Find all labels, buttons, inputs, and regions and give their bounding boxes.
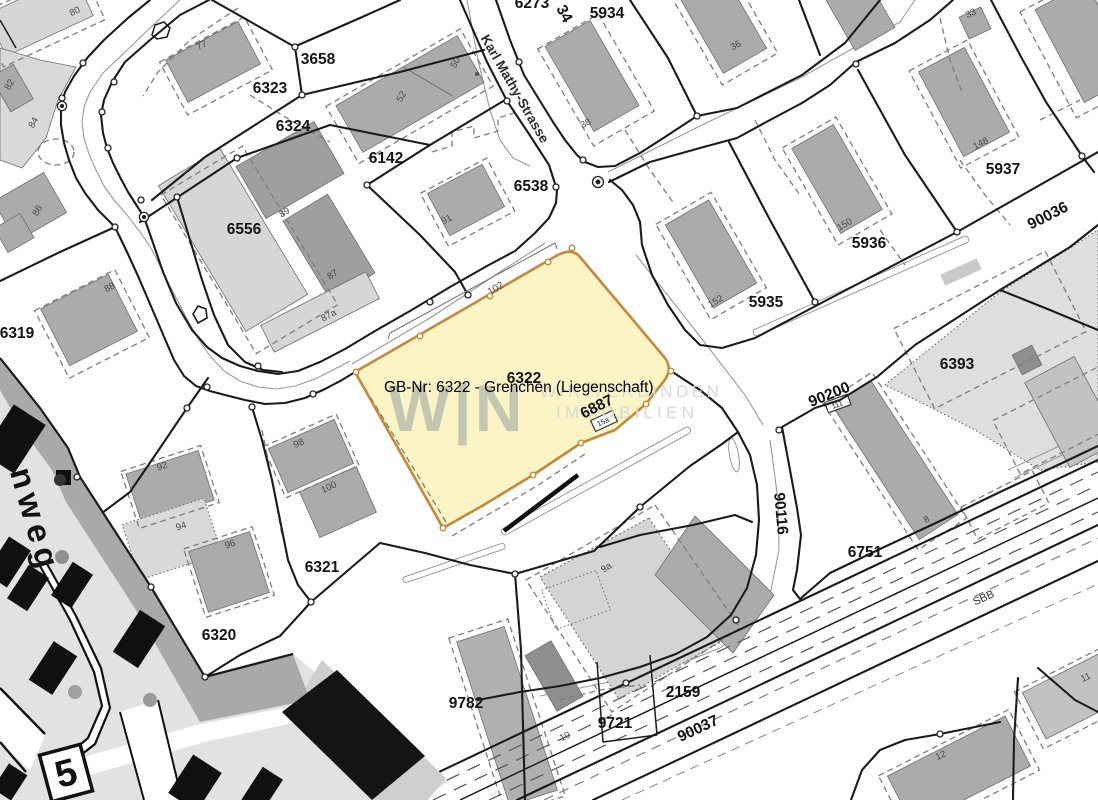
svg-text:6319: 6319 [0, 325, 35, 342]
svg-text:IMMOBILIEN: IMMOBILIEN [556, 403, 698, 422]
svg-text:6556: 6556 [227, 221, 262, 238]
svg-text:6323: 6323 [253, 80, 288, 97]
svg-text:6320: 6320 [202, 627, 236, 644]
svg-text:5934: 5934 [590, 5, 625, 22]
svg-text:6751: 6751 [848, 544, 883, 561]
svg-text:6273: 6273 [515, 0, 550, 12]
svg-text:5935: 5935 [749, 294, 784, 311]
svg-text:6538: 6538 [514, 178, 549, 195]
svg-text:3658: 3658 [301, 51, 336, 68]
svg-text:5936: 5936 [852, 235, 887, 252]
svg-text:GB-Nr: 6322 - Grenchen (Liegen: GB-Nr: 6322 - Grenchen (Liegenschaft) [384, 379, 653, 396]
svg-text:6324: 6324 [276, 118, 311, 135]
svg-text:9782: 9782 [449, 695, 483, 712]
svg-text:9721: 9721 [598, 715, 633, 732]
svg-text:6321: 6321 [305, 559, 340, 576]
svg-text:6393: 6393 [940, 356, 975, 373]
svg-text:2159: 2159 [666, 684, 701, 701]
svg-text:6142: 6142 [369, 150, 403, 167]
svg-text:5937: 5937 [986, 161, 1020, 178]
